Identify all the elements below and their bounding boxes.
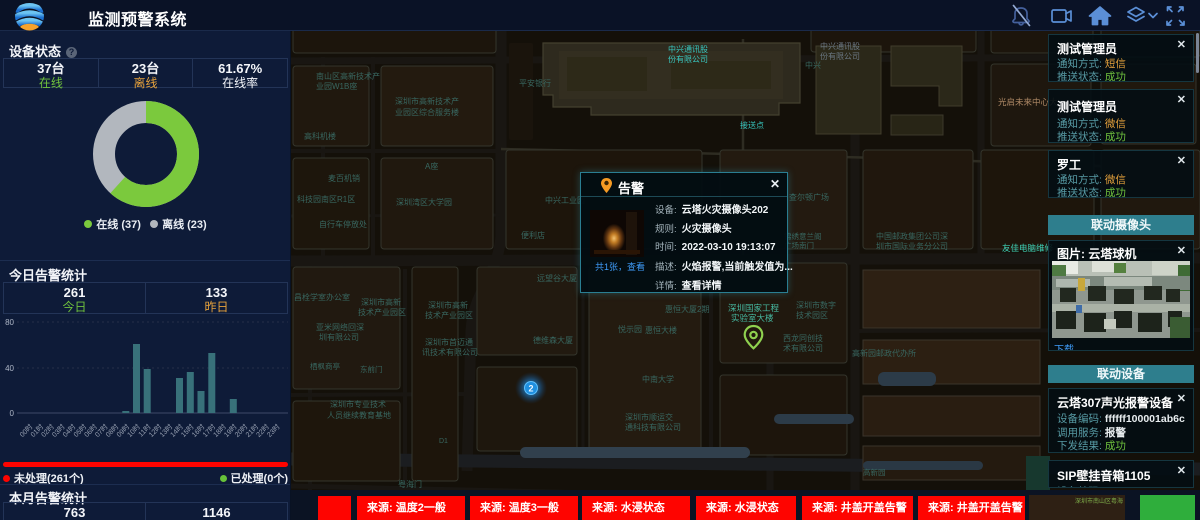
svg-text:锦绣意兰阁: 锦绣意兰阁 <box>784 231 822 241</box>
svg-text:40: 40 <box>5 364 14 373</box>
svg-text:深圳市顺运交: 深圳市顺运交 <box>625 412 673 422</box>
svg-text:技术园区: 技术园区 <box>796 310 828 320</box>
svg-text:昌栓学室办公室: 昌栓学室办公室 <box>294 292 350 302</box>
svg-text:技术产业园区: 技术产业园区 <box>425 310 473 320</box>
svg-text:深圳市高新: 深圳市高新 <box>428 300 468 310</box>
svg-text:高新园: 高新园 <box>863 467 886 477</box>
svg-text:亚米网络回深: 亚米网络回深 <box>316 322 364 332</box>
svg-text:业园区综合服务楼: 业园区综合服务楼 <box>395 107 459 117</box>
svg-text:高新园邮政代办所: 高新园邮政代办所 <box>852 348 916 358</box>
svg-text:人员继续教育基地: 人员继续教育基地 <box>327 410 391 420</box>
svg-text:远望谷大厦: 远望谷大厦 <box>537 273 577 283</box>
svg-text:深圳国家工程: 深圳国家工程 <box>728 303 780 313</box>
svg-text:深圳市首迈通: 深圳市首迈通 <box>425 337 473 347</box>
svg-text:接送点: 接送点 <box>740 120 764 130</box>
svg-text:粤海门: 粤海门 <box>398 479 422 489</box>
svg-text:西龙同创技: 西龙同创技 <box>783 333 823 343</box>
svg-text:0: 0 <box>10 409 15 418</box>
svg-text:D1: D1 <box>439 438 448 445</box>
svg-text:技术产业园区: 技术产业园区 <box>358 307 406 317</box>
svg-text:广场南门: 广场南门 <box>784 240 814 250</box>
svg-text:平安银行: 平安银行 <box>519 78 551 88</box>
svg-text:深圳市专业技术: 深圳市专业技术 <box>330 399 386 409</box>
svg-text:中兴通讯股: 中兴通讯股 <box>820 41 860 51</box>
svg-text:高科机楼: 高科机楼 <box>304 131 336 141</box>
svg-text:业园W1B座: 业园W1B座 <box>316 81 357 91</box>
svg-text:份有限公司: 份有限公司 <box>820 51 860 61</box>
svg-text:中兴通讯股: 中兴通讯股 <box>668 44 708 54</box>
svg-text:深圳市高新: 深圳市高新 <box>361 297 401 307</box>
svg-text:查尔顿广场: 查尔顿广场 <box>789 192 829 202</box>
svg-text:惠恒大厦2期: 惠恒大厦2期 <box>665 304 709 314</box>
svg-text:圳有限公司: 圳有限公司 <box>319 332 359 342</box>
svg-text:东前门: 东前门 <box>360 364 383 374</box>
svg-text:中国邮政集团公司深: 中国邮政集团公司深 <box>876 231 948 241</box>
svg-text:术有限公司: 术有限公司 <box>783 343 823 353</box>
svg-text:深圳市数字: 深圳市数字 <box>796 300 836 310</box>
svg-text:中兴工业园: 中兴工业园 <box>545 195 585 205</box>
svg-text:栖枫商亭: 栖枫商亭 <box>310 361 340 371</box>
svg-text:友佳电脑维修: 友佳电脑维修 <box>1002 243 1054 253</box>
svg-text:德维森大厦: 德维森大厦 <box>533 335 573 345</box>
svg-text:80: 80 <box>5 318 14 327</box>
svg-text:自行车停放处: 自行车停放处 <box>319 219 367 229</box>
svg-text:通科技有限公司: 通科技有限公司 <box>625 422 681 432</box>
svg-text:实验室大楼: 实验室大楼 <box>731 313 774 323</box>
svg-text:2: 2 <box>528 384 533 394</box>
svg-text:悦示园: 悦示园 <box>618 324 642 334</box>
svg-text:便利店: 便利店 <box>521 230 545 240</box>
svg-text:惠恒大楼: 惠恒大楼 <box>645 325 677 335</box>
svg-text:深圳市高新技术产: 深圳市高新技术产 <box>395 96 459 106</box>
svg-text:讯技术有限公司: 讯技术有限公司 <box>422 347 478 357</box>
svg-text:麦百机销: 麦百机销 <box>328 173 360 183</box>
svg-text:中南大学: 中南大学 <box>642 374 674 384</box>
svg-text:A座: A座 <box>425 161 438 171</box>
svg-text:圳市国际业务分公司: 圳市国际业务分公司 <box>876 241 948 251</box>
svg-text:中兴: 中兴 <box>805 60 821 70</box>
svg-text:南山区高新技术产: 南山区高新技术产 <box>316 71 380 81</box>
svg-text:份有限公司: 份有限公司 <box>668 54 708 64</box>
svg-text:科技园南区R1区: 科技园南区R1区 <box>297 194 355 204</box>
svg-text:深圳湾区大学园: 深圳湾区大学园 <box>396 197 452 207</box>
